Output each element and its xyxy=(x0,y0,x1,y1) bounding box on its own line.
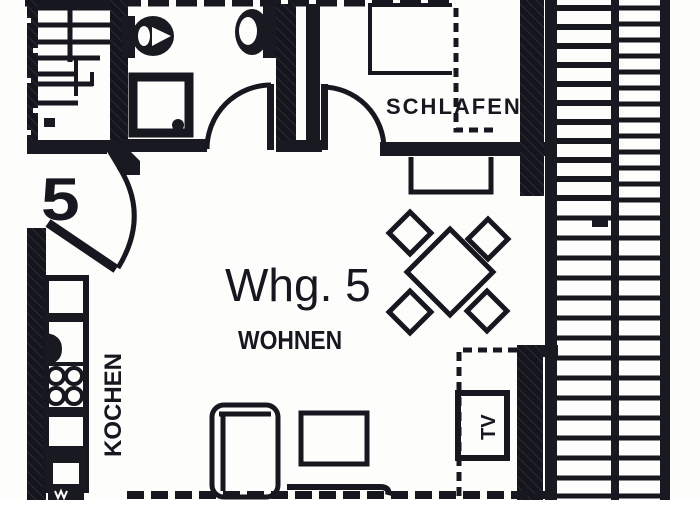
svg-text:Whg. 5: Whg. 5 xyxy=(225,259,371,311)
svg-text:TV: TV xyxy=(478,414,500,440)
svg-text:KOCHEN: KOCHEN xyxy=(100,353,127,457)
svg-text:WOHNEN: WOHNEN xyxy=(238,327,342,356)
svg-text:5: 5 xyxy=(41,166,80,233)
